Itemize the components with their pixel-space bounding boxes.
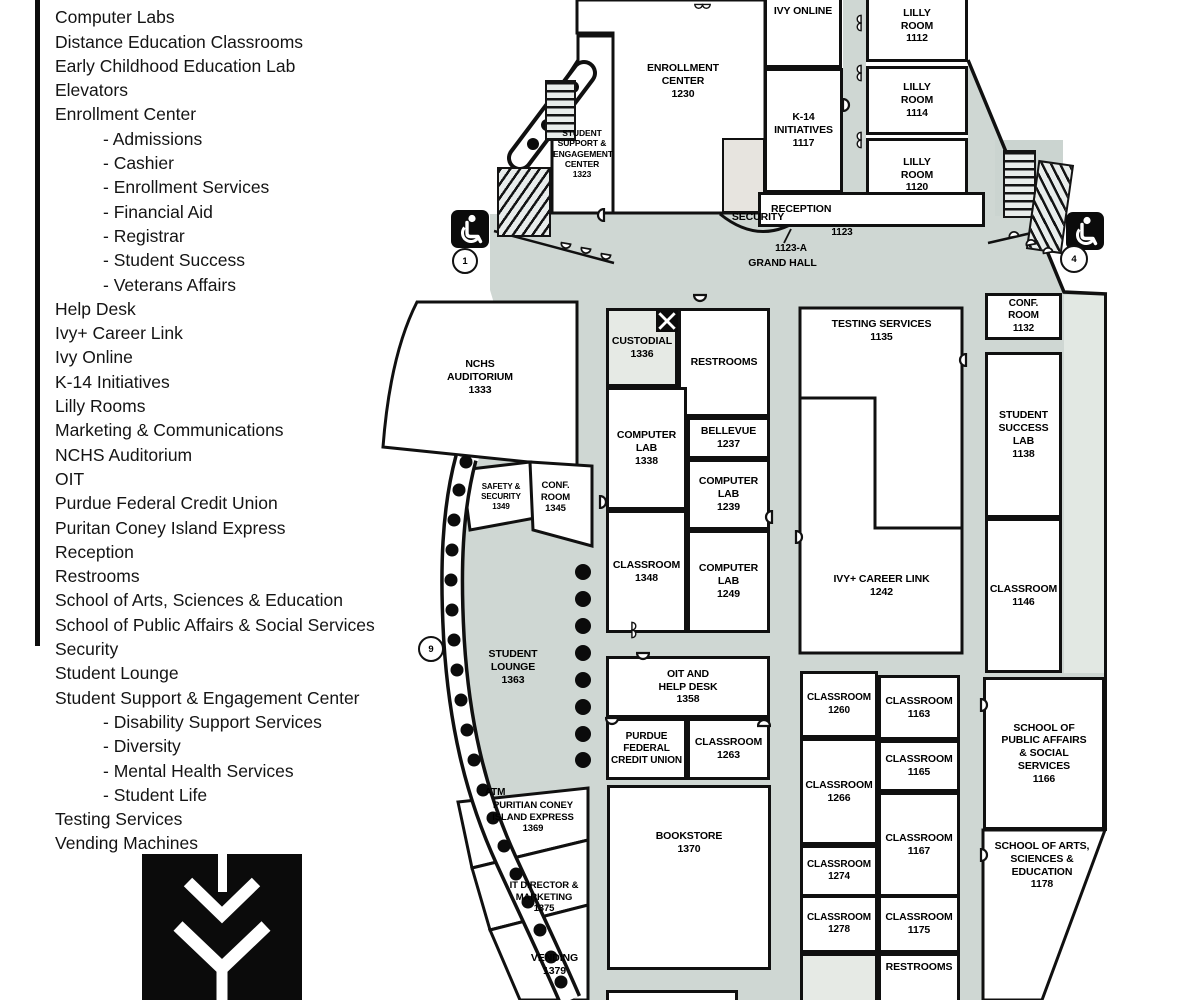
room-label-career-link: IVY+ CAREER LINK 1242 — [800, 573, 963, 599]
security-label: SECURITY — [722, 211, 794, 224]
exit-marker-1: 1 — [452, 248, 478, 274]
legend-item: Enrollment Center — [55, 102, 415, 126]
room-classroom-1165: CLASSROOM 1165 — [878, 740, 960, 792]
legend-item: NCHS Auditorium — [55, 443, 415, 467]
legend-item: Security — [55, 637, 415, 661]
elevator-icon-legend — [189, 810, 207, 828]
elevator-icon-legend — [301, 762, 319, 780]
elevator-icon-legend — [291, 421, 309, 439]
grand-hall-label: GRAND HALL — [735, 257, 830, 270]
room-ssl-1138: STUDENT SUCCESS LAB 1138 — [985, 352, 1062, 518]
room-partial-bottom — [606, 990, 738, 1000]
legend-item: Restrooms — [55, 564, 415, 588]
room-computer-lab-1338: COMPUTER LAB 1338 — [606, 387, 687, 510]
room-classroom-1274: CLASSROOM 1274 — [800, 845, 878, 897]
room-conf-1132: CONF. ROOM 1132 — [985, 293, 1062, 340]
room-label-enrollment-center: ENROLLMENT CENTER 1230 — [628, 62, 738, 100]
elevator-icon-legend — [199, 446, 217, 464]
legend-item: Purdue Federal Credit Union — [55, 491, 415, 515]
legend-list: Classrooms Computer Labs Distance Educat… — [55, 0, 415, 856]
room-shaded-bottom — [800, 953, 878, 1000]
legend-item: Early Childhood Education Lab — [55, 54, 415, 78]
exit-marker-4: 4 — [1060, 245, 1088, 273]
elevator-icon-legend — [203, 105, 221, 123]
legend-item: School of Public Affairs & Social Servic… — [55, 613, 415, 637]
wheelchair-icon-left — [451, 210, 489, 248]
elevator-icon-legend — [367, 689, 385, 707]
floor-plan-page: IVY ONLINE K-14 INITIATIVES 1117 LILLY R… — [0, 0, 1180, 1000]
legend-item: - Mental Health Services — [55, 759, 415, 783]
room-restrooms-top: RESTROOMS — [678, 308, 770, 417]
legend-item: K-14 Initiatives — [55, 370, 415, 394]
elevator-icon-legend — [205, 834, 223, 852]
elevator-icon-legend — [152, 397, 170, 415]
legend-item: - Diversity — [55, 734, 415, 758]
elevator-icon-legend — [220, 203, 238, 221]
legend-item: Marketing & Communications — [55, 418, 415, 442]
legend-item: - Disability Support Services — [55, 710, 415, 734]
legend-item: - Enrollment Services — [55, 175, 415, 199]
security-number-label: 1123-A — [766, 243, 816, 255]
legend-item: Student Lounge — [55, 661, 415, 685]
elevator-icon-legend — [285, 494, 303, 512]
legend-item: OIT — [55, 467, 415, 491]
legend-item: Help Desk — [55, 297, 415, 321]
elevator-icon-legend — [141, 543, 159, 561]
room-classroom-1278: CLASSROOM 1278 — [800, 895, 878, 953]
reception-number-label: 1123 — [822, 227, 862, 239]
lounge-columns — [575, 564, 591, 768]
room-restrooms-bottom: RESTROOMS — [878, 953, 960, 1000]
room-school-public: SCHOOL OF PUBLIC AFFAIRS & SOCIAL SERVIC… — [983, 677, 1105, 830]
legend-item: - Student Life — [55, 783, 415, 807]
exit-marker-9: 9 — [418, 636, 444, 662]
legend-item: - Registrar — [55, 224, 415, 248]
legend-item: Testing Services — [55, 807, 415, 831]
corridor-strip-right — [1064, 295, 1105, 673]
legend-item: - Student Success — [55, 248, 415, 272]
elevator-icon-legend — [350, 591, 368, 609]
elevator-icon-legend — [91, 470, 109, 488]
legend-item: Puritan Coney Island Express — [55, 516, 415, 540]
elevator-icon-legend — [140, 348, 158, 366]
legend-item: - Veterans Affairs — [55, 273, 415, 297]
elevator-icon-legend — [125, 640, 143, 658]
room-classroom-1266: CLASSROOM 1266 — [800, 738, 878, 845]
room-computer-lab-1249: COMPUTER LAB 1249 — [687, 530, 770, 633]
elevator-icon-legend — [329, 713, 347, 731]
room-lilly-1114: LILLY ROOM 1114 — [866, 66, 968, 135]
elevator-icon-legend — [181, 154, 199, 172]
legend-rule — [35, 0, 40, 646]
elevator-icon-legend — [276, 178, 294, 196]
room-label-ssec: STUDENT SUPPORT & ENGAGEMENT CENTER 1323 — [553, 128, 611, 180]
legend-item: - Financial Aid — [55, 200, 415, 224]
room-classroom-1260: CLASSROOM 1260 — [800, 671, 878, 738]
room-classroom-1163: CLASSROOM 1163 — [878, 675, 960, 740]
elevator-icon-legend — [188, 737, 206, 755]
elevator-icon-legend — [382, 616, 400, 634]
room-pfcu: PURDUE FEDERAL CREDIT UNION — [606, 718, 687, 780]
elevator-icon-legend — [147, 567, 165, 585]
elevator-icon-legend — [243, 276, 261, 294]
room-computer-lab-1239: COMPUTER LAB 1239 — [687, 459, 770, 530]
room-classroom-1263: CLASSROOM 1263 — [687, 718, 770, 780]
elevator-icon-legend — [209, 130, 227, 148]
room-oit: OIT AND HELP DESK 1358 — [606, 656, 770, 718]
elevator-icon-legend — [135, 81, 153, 99]
elevator-icon-legend — [293, 519, 311, 537]
room-bellevue: BELLEVUE 1237 — [687, 417, 770, 459]
elevator-icon-legend — [310, 33, 328, 51]
room-label-puritan: PURITIAN CONEY ISLAND EXPRESS 1369 — [483, 800, 583, 835]
room-classroom-1167: CLASSROOM 1167 — [878, 792, 960, 897]
room-label-student-lounge: STUDENT LOUNGE 1363 — [479, 648, 547, 686]
elevator-icon-legend — [214, 786, 232, 804]
corridor-strip-top — [843, 0, 866, 216]
elevator-icon-legend — [143, 300, 161, 318]
room-label-vending: VENDING 1379 — [512, 952, 597, 978]
legend-item: Ivy+ Career Link — [55, 321, 415, 345]
curved-wall-outer — [452, 458, 570, 1000]
legend-item: School of Arts, Sciences & Education — [55, 588, 415, 612]
room-k14: K-14 INITIATIVES 1117 — [764, 68, 843, 193]
curved-wall-inner — [452, 458, 570, 1000]
legend-item: Student Support & Engagement Center — [55, 686, 415, 710]
elevator-icon-legend — [186, 664, 204, 682]
elevator-icon-legend — [252, 251, 270, 269]
room-lilly-1112: LILLY ROOM 1112 — [866, 0, 968, 62]
room-ivy-online: IVY ONLINE — [764, 0, 842, 68]
legend-item: Distance Education Classrooms — [55, 30, 415, 54]
legend-item: Lilly Rooms — [55, 394, 415, 418]
legend-item: - Cashier — [55, 151, 415, 175]
room-classroom-1146: CLASSROOM 1146 — [985, 518, 1062, 673]
room-classroom-1348: CLASSROOM 1348 — [606, 510, 687, 633]
elevator-icon-legend — [177, 373, 195, 391]
pointer-1123a — [784, 229, 791, 243]
legend-item: Computer Labs — [55, 5, 415, 29]
room-custodial: CUSTODIAL 1336 — [606, 308, 678, 387]
elevator-icon-legend — [190, 324, 208, 342]
room-bookstore: BOOKSTORE 1370 — [607, 785, 771, 970]
elevator-icon-legend — [182, 8, 200, 26]
room-label-school-arts: SCHOOL OF ARTS, SCIENCES & EDUCATION 117… — [986, 840, 1098, 891]
stairs-top-left-run1 — [497, 167, 551, 237]
legend-item: Ivy Online — [55, 345, 415, 369]
legend-item: - Admissions — [55, 127, 415, 151]
ivy-tech-logo — [142, 854, 302, 1000]
room-label-safety: SAFETY & SECURITY 1349 — [470, 482, 532, 511]
elevator-icon-legend — [192, 227, 210, 245]
room-classroom-1175: CLASSROOM 1175 — [878, 895, 960, 953]
legend-item: Reception — [55, 540, 415, 564]
room-label-it-director: IT DIRECTOR & MARKETING 1375 — [498, 880, 590, 915]
room-label-testing: TESTING SERVICES 1135 — [800, 318, 963, 344]
room-label-conf-1345: CONF. ROOM 1345 — [533, 480, 578, 515]
elevator-icon-legend — [154, 0, 172, 2]
elevator-icon-legend — [302, 57, 320, 75]
legend-item: Elevators — [55, 78, 415, 102]
atm-label: ATM — [477, 787, 513, 799]
room-career-link-outline — [800, 398, 962, 653]
legend-item: Vending Machines — [55, 831, 415, 855]
room-label-nchs: NCHS AUDITORIUM 1333 — [440, 358, 520, 396]
